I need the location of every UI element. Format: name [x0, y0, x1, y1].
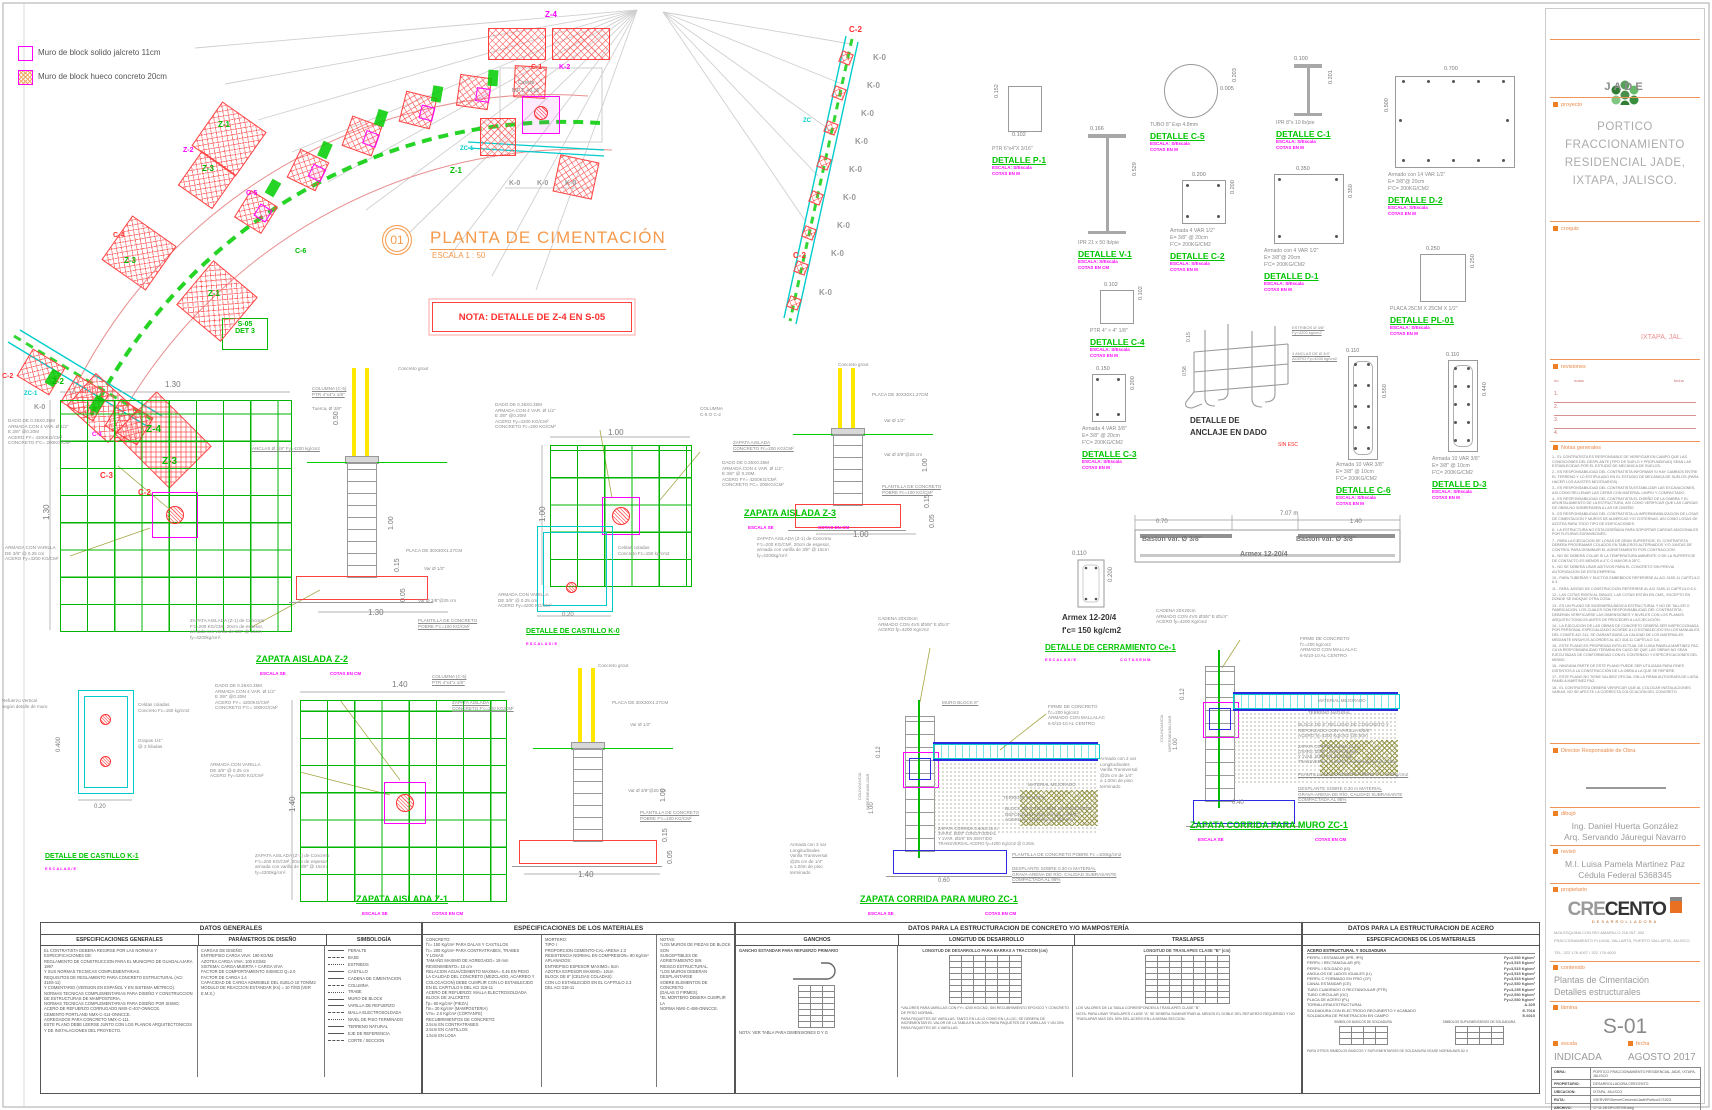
info-label: UBICACION: — [1552, 1088, 1591, 1095]
rebar-dot — [1217, 184, 1220, 187]
z2-section-dado-ladder — [347, 462, 377, 578]
plan-label-c-6: C-6 — [295, 248, 306, 255]
callout: Grapas 1/4"@ 2 hiladas — [138, 738, 162, 749]
plan-label-z-3: Z-3 — [202, 164, 214, 173]
callout: 0.529 — [1132, 162, 1139, 176]
rebar-dot — [1467, 439, 1470, 442]
detail-title-C-2: DETALLE C-2 — [1170, 251, 1225, 261]
callout: 0.200 — [1130, 376, 1137, 390]
table-line: MODULO DE REACCION ESTANDAR (Ks) = 10 T/… — [201, 985, 321, 996]
rebar-dot — [1402, 159, 1405, 162]
jade-logo-icon — [1546, 45, 1704, 105]
detail-card-C-6: Armada 10 VAR 3/8"E= 3/8" @ 10cmF'C= 200… — [1336, 462, 1391, 508]
grid-cell — [985, 998, 997, 1004]
zapata-tile — [101, 215, 176, 290]
callout: 1.00 — [660, 788, 668, 802]
rebar-dot — [1367, 405, 1370, 408]
croquis-place: IXTAPA, JAL. — [1641, 334, 1683, 342]
plan-label-k-0: K-0 — [34, 404, 45, 411]
callout: DADO DE 0.35X0.35MARMADA CON 4 VAR. Ø 1/… — [8, 418, 71, 446]
data-grid — [1339, 1026, 1388, 1045]
grid-cell — [1157, 998, 1169, 1004]
plan-label-c-3: C-3 — [92, 432, 102, 438]
callout: 0.550 — [1382, 384, 1389, 398]
dibujo-name-1: Ing. Daniel Huerta González — [1546, 821, 1704, 831]
callout: COLINDANCIA — [858, 773, 863, 800]
z1-section-dado-ladder — [573, 748, 603, 842]
plan-label-c-2: C-2 — [793, 251, 806, 260]
general-note: 8.- NO SE DEBERÁ COLAR SI LA TEMPERATURA… — [1552, 554, 1700, 563]
detail-caption: PTR 4" × 4" 1/8" — [1090, 328, 1145, 335]
detail-title-PL-01: DETALLE PL-01 — [1390, 315, 1458, 325]
symbol-glyph — [328, 1005, 344, 1006]
info-row: PROPIETARIO:DESARROLLADORA CRECENTO — [1552, 1080, 1700, 1088]
detail-title-C-5: DETALLE C-5 — [1150, 131, 1205, 141]
detail-cotas: COTAS EN M — [992, 171, 1046, 177]
callout: ZAPATA CORRIDA 0.40x0.15 m(2VARS. Ø3/8" … — [1298, 744, 1397, 764]
symbol-label: CORTE / SECCION — [348, 1038, 384, 1043]
glyph-section-D-2 — [1395, 76, 1515, 168]
propietario-label: propietario — [1553, 887, 1587, 893]
callout: DADO DE 0.35X0.35MARMADA CON 4 VAR. Ø 1/… — [215, 683, 278, 711]
zc1-right-castillo-inner — [1209, 708, 1231, 730]
rebar-dot — [1096, 378, 1099, 381]
detail-card-V-1: IPR 21 x 50 lb/pieDETALLE V-1ESCALA: S/E… — [1078, 240, 1132, 272]
symbol-label: NIVEL DE PISO TERMINADO — [348, 1017, 403, 1022]
callout: PLANTILLA DE CONCRETOPOBRE Fc=100 KG/CM² — [882, 484, 941, 495]
detail-card-D-1: Armado con 4 VAR 1/2"E= 3/8"@ 20cmF'C= 2… — [1264, 248, 1319, 294]
plan-label-c-4: C-4 — [114, 437, 125, 444]
callout: ZAPATA CORRIDA PARA MURO ZC-1 — [860, 894, 1018, 905]
callout: ESCALA SE — [1198, 837, 1224, 842]
plan-label-k-0: K-0 — [837, 221, 850, 230]
revision-row: 2. — [1554, 404, 1696, 416]
glyph-section-C-3 — [1092, 374, 1126, 422]
symbol-glyph — [328, 964, 344, 965]
general-note: 10.- PARA TUBERÍAS Y DUCTOS EMBEBIDOS RE… — [1552, 576, 1700, 585]
rebar-dot — [1367, 426, 1370, 429]
callout: SIN ESC — [1278, 442, 1298, 448]
lamina-label: lámina — [1553, 1005, 1577, 1011]
detail-caption: E= 3/8" @ 10cm — [1336, 469, 1391, 476]
callout: Celdas coladasConcreto Fc=150 kg/cm2 — [138, 702, 189, 713]
plan-label-c-1: C-1 — [531, 64, 542, 71]
especificaciones-generales-text: EL CONTRATISTA DEBERA REGIRSE POR LAS NO… — [41, 946, 198, 1077]
callout: 0.440 — [1482, 382, 1489, 396]
symbology-item: PERALTE — [328, 948, 418, 953]
grid-cell — [1339, 1039, 1351, 1045]
wall-segment — [374, 109, 388, 127]
revisiones-label: revisiones — [1553, 364, 1586, 370]
zapata-tile — [823, 120, 839, 136]
callout: ARMADA CON VARILLADE 3/8" @ 0.25 cmACERO… — [498, 592, 551, 609]
table-datos-generales: DATOS GENERALES ESPECIFICACIONES GENERAL… — [40, 922, 422, 1094]
detail-cotas: COTAS EN M — [1388, 211, 1445, 217]
plan-label-k-0: K-0 — [509, 180, 520, 187]
callout: 0.152 — [994, 84, 1001, 98]
detail-caption: Armada 10 VAR 3/8" — [1336, 462, 1391, 469]
callout: 1.40 — [1350, 519, 1362, 526]
rebar-dot — [1367, 447, 1370, 450]
rebar-dot — [1399, 119, 1402, 122]
ganchos-note: NOTA: VER TABLA PARA DIMENSIONES D Y G — [739, 1030, 894, 1035]
rebar-dot — [1506, 119, 1509, 122]
general-note: 17.- ESTE PLANO NO TIENE VALIDEZ OFICIAL… — [1552, 675, 1700, 684]
rebar-dot — [1454, 421, 1457, 424]
callout: PLANTILLA DE CONCRETO POBRE F'c =100kg/c… — [1298, 772, 1408, 778]
detail-cotas: COTAS EN M — [1170, 267, 1225, 273]
glyph-section-PL-01 — [1420, 254, 1466, 302]
glyph-ibeam-C-1 — [1294, 64, 1322, 116]
symbology-item: TERRENO NATURAL — [328, 1024, 418, 1029]
traslapes-caption: LONGITUD DE TRASLAPES CLASE "B" (cm) — [1076, 948, 1298, 953]
revision-row: 1. — [1554, 391, 1696, 403]
callout: DESPLANTE SOBRE 0.30 m MATERIALGRAVA-ARE… — [1012, 866, 1117, 883]
zc1-right-firme — [1233, 694, 1400, 709]
plan-label-k-0: K-0 — [867, 81, 880, 90]
callout: ESTRIBOS Ø 3/8"Fy=4200 kg/cm2 — [1292, 326, 1325, 336]
callout: PLACA DE 30X30X1.27CM — [406, 548, 462, 554]
callout: FIRME DE CONCRETOf'c=200 kg/cm2ARMADO CO… — [1300, 636, 1357, 658]
callout: ESCALA SE — [748, 525, 774, 530]
callout: E S C A L A S / E — [526, 642, 557, 647]
callout: f'c= 150 kg/cm2 — [1062, 626, 1121, 636]
plan-label-zc-1: ZC-1 — [24, 391, 37, 397]
callout: 0.200 — [1230, 180, 1237, 194]
callout: 0.12 — [1180, 688, 1187, 700]
glyph-section-C-4 — [1100, 290, 1134, 324]
detail-caption: F'C= 200KG/CM2 — [1388, 186, 1445, 193]
callout: 0.203 — [1232, 68, 1239, 82]
callout: E S C A L A S / E — [1045, 658, 1076, 663]
plan-label-c-2: C-2 — [849, 25, 862, 34]
grid-cell — [823, 1022, 835, 1028]
callout: PLANTILLA DE CONCRETO POBRE Fc =100kg/cm… — [1012, 852, 1121, 858]
general-notes: 1.- EL CONTRATISTA ES RESPONSABLE DE VER… — [1552, 455, 1700, 696]
table-line: REQUISITOS DE REGLAMENTO PARA CONCRETO E… — [44, 975, 194, 986]
portal-dado-circle — [534, 106, 548, 120]
data-grid — [1145, 955, 1230, 1004]
callout: 0.12 — [876, 746, 883, 758]
table-line: REGLAMENTO DE CONSTRUCCION PARA EL MUNIC… — [44, 959, 194, 970]
info-label: OBRA: — [1552, 1068, 1591, 1079]
rebar-dot — [1477, 80, 1480, 83]
crecento-logo-part1: CRE — [1568, 899, 1605, 920]
zapata-tile — [831, 85, 847, 101]
detail-caption: E= 3/8" @ 10cm — [1432, 463, 1487, 470]
signature-line — [1586, 787, 1666, 789]
fecha-label: fecha — [1628, 1041, 1649, 1047]
callout: 1.00 — [869, 802, 876, 814]
detail-caption: F'C= 200KG/CM2 — [1082, 440, 1137, 447]
callout: ZAPATA AISLADA Z-1 — [356, 894, 448, 905]
table-line: SUSCEPTIBLES DE AGRIETAMIENTO SIN — [660, 953, 731, 964]
acero-item: SOLDADURA DE PENETRACION EN CAMPO — [1307, 1013, 1389, 1018]
detail-cotas: COTAS EN M — [1276, 145, 1331, 151]
callout: 1.00 — [538, 506, 548, 522]
general-note: 14.- LA EJECUCION DE LAS OBRAS DE CONCRE… — [1552, 624, 1700, 643]
simbologia-list: PERALTEBASEESTRIBOSCASTILLOCADENA DE CIM… — [325, 946, 421, 1077]
zc1-left-plantilla — [886, 876, 1012, 877]
zapata-tile — [480, 118, 516, 156]
table-line: 1.5cm EN LOSA — [426, 1033, 538, 1038]
cage — [1453, 365, 1473, 447]
grid-cell — [1467, 1039, 1479, 1045]
callout: Concreto grout — [838, 362, 868, 368]
detail-caption: PTR 6"x4"X 3/16" — [992, 146, 1046, 153]
info-value: PORTICO FRACCIONAMIENTO RESIDENCIAL JADE… — [1591, 1068, 1700, 1079]
symbol-glyph — [328, 1033, 344, 1034]
general-note: 9.- NO SE DEBERÁ USAR ADITIVOS PARA EL C… — [1552, 565, 1700, 574]
callout: 0.350 — [1348, 184, 1355, 198]
detail-title-D-2: DETALLE D-2 — [1388, 195, 1445, 205]
callout: 0.60 — [938, 878, 950, 885]
callout: COTAS EN CM — [432, 911, 463, 916]
callout: 0.05 — [400, 588, 408, 602]
wall-segment — [487, 70, 498, 87]
table-mamposteria: DATOS PARA LA ESTRUCTURACION DE CONCRETO… — [735, 922, 1302, 1094]
callout: 4 ANCLAS DE Ø 3/4"ACERO Fy=4200 kg/cm2 — [1292, 352, 1337, 362]
castillo-marker — [475, 87, 491, 103]
castillo-k0-inner — [543, 532, 607, 606]
info-row: RUTA:\\SERVER\Server\Crecento\Jade\Pórti… — [1552, 1096, 1700, 1104]
table-line: Y DE INSTALACIONES DEL PROYECTO. — [44, 1028, 194, 1033]
z3-section-dado-ladder — [833, 434, 863, 506]
callout: DETALLE DE CASTILLO K-0 — [526, 628, 620, 636]
detail-caption: Armada 4 VAR 1/2" — [1170, 228, 1225, 235]
longitud-caption: LONGITUD DE DESARROLLO PARA BARRAS A TRA… — [901, 948, 1069, 953]
general-note: 5.- ES RESPONSABILIDAD DEL CONTRATISTA L… — [1552, 512, 1700, 526]
callout: 1.40 — [288, 796, 298, 812]
general-note: 11.- PARA JUNTAS DE CONSTRUCCION REFERIR… — [1552, 587, 1700, 592]
callout: 1.00 — [922, 458, 930, 472]
address-line-2: FRACCIONAMIENTO FLUVIAL VALLARTA, PUERTO… — [1554, 939, 1694, 944]
symbol-glyph — [328, 957, 344, 958]
callout: Armex 12-20/4 — [1062, 613, 1116, 623]
plan-label-z-3: Z-3 — [124, 256, 136, 265]
plan-label-k-0: K-0 — [831, 249, 844, 258]
col-traslapes: TRASLAPES — [1075, 935, 1301, 945]
plan-label-k-0: K-0 — [861, 109, 874, 118]
detail-card-C-4: PTR 4" × 4" 1/8"DETALLE C-4ESCALA: S/Esc… — [1090, 328, 1145, 360]
rebar-dot — [1502, 80, 1505, 83]
symbology-item: EJE DE REFERENCIA — [328, 1031, 418, 1036]
detail-caption: PLACA 25CM X 25CM X 1/2" — [1390, 306, 1458, 313]
callout: ARMADA CON VARILLADE 3/8" @ 0.25 cmACERO… — [210, 762, 263, 779]
callout: COTAS EN CM — [330, 671, 361, 676]
callout: 0.40 — [1232, 800, 1244, 807]
detail-card-P-1: PTR 6"x4"X 3/16"DETALLE P-1ESCALA: S/Esc… — [992, 146, 1046, 178]
zc1-left-firme — [933, 744, 1100, 759]
contenido-line-2: Detalles estructurales — [1554, 987, 1641, 998]
detail-caption: Armada 4 VAR 3/8" — [1082, 426, 1137, 433]
plan-label-n.p.t. +0.15: N.P.T. +0.15 — [512, 88, 539, 94]
callout: 0.102 — [1138, 286, 1145, 300]
rebar-dot — [1454, 439, 1457, 442]
plan-label-z-4: Z-4 — [146, 424, 161, 435]
callout: TERRENO NATURAL — [1308, 710, 1351, 715]
info-row: OBRA:PORTICO FRACCIONAMIENTO RESIDENCIAL… — [1552, 1068, 1700, 1080]
symbol-label: VARILLA DE REFUERZO — [348, 1003, 395, 1008]
callout: E S C A L A S / E — [45, 867, 76, 872]
acero-rows: PERFIL I ESTANDAR (IPR, IPS)Fy=2,530 Kg/… — [1307, 955, 1535, 1018]
grid-cell — [1375, 1039, 1387, 1045]
castillo-marker — [419, 105, 436, 122]
table-note: PARA PAQUETES DE VARILLAS, TANTO EN LA L… — [901, 1017, 1069, 1031]
web — [1106, 134, 1109, 234]
zapata-tile — [816, 155, 832, 171]
rebar-dot — [1477, 159, 1480, 162]
project-name-1: PORTICO — [1546, 121, 1704, 133]
callout: 0.150 — [1096, 366, 1110, 373]
rebar-dot — [1452, 80, 1455, 83]
wall-segment — [265, 179, 282, 198]
weld-table-1-title: SIMBOLOS BASICOS DE SOLDADURA — [1307, 1020, 1419, 1024]
table-line: ESTE PLANO DEBE LEERSE JUNTO CON LOS PLA… — [44, 1022, 194, 1027]
z1-section-grade-line — [533, 748, 673, 749]
col-ganchos: GANCHOS — [736, 935, 899, 945]
callout: 1.00 — [1173, 738, 1180, 750]
detail-title-C-6: DETALLE C-6 — [1336, 485, 1391, 495]
callout: PLACA DE 30X30X1.27CM — [612, 700, 668, 706]
plan-label-caseta: Caseta — [518, 80, 534, 86]
callout: ESCALA SE — [362, 911, 388, 916]
detail-title-D-3: DETALLE D-3 — [1432, 479, 1487, 489]
callout: 0.50 — [333, 411, 341, 425]
symbology-item: CORTE / SECCION — [328, 1038, 418, 1043]
rebar-dot — [1427, 80, 1430, 83]
info-value: 17.11.28.OP.LISTOS.dwg — [1591, 1104, 1700, 1110]
z2-section-grade-line — [307, 462, 447, 463]
symbology-item: MURO DE BLOCK — [328, 996, 418, 1001]
project-name-4: IXTAPA, JALISCO. — [1546, 175, 1704, 187]
symbol-label: TRABE — [348, 989, 362, 994]
callout: Armex 12-20/4 — [1240, 551, 1287, 559]
contenido-label: contenido — [1553, 965, 1585, 971]
table-line: *LOS MUROS DE PIEZAS DE BLOCK SON — [660, 942, 731, 953]
zapata-tile — [176, 260, 258, 342]
detail-caption: Armado con 4 VAR 1/2" — [1264, 248, 1319, 255]
callout: Refuerzo Verticalsegún detalle de muro — [2, 698, 47, 709]
symbology-item: CASTILLO — [328, 969, 418, 974]
callout: 0.166 — [1090, 126, 1104, 133]
callout: Concreto grout — [398, 366, 428, 372]
callout: 0.201 — [1328, 70, 1335, 84]
grid-cell — [997, 998, 1009, 1004]
web — [1307, 64, 1310, 116]
detail-title-C-4: DETALLE C-4 — [1090, 337, 1145, 347]
callout: Armado con 2 varLongitudinalesVarilla Tr… — [1100, 756, 1137, 789]
callout: 0.250 — [1426, 246, 1440, 253]
symbol-label: BASE — [348, 955, 359, 960]
plan-label-z-1: Z-1 — [218, 120, 230, 129]
detail-title-C-3: DETALLE C-3 — [1082, 449, 1137, 459]
plan-label-z-1: Z-1 — [208, 289, 220, 298]
detail-caption: IPR 21 x 50 lb/pie — [1078, 240, 1132, 247]
proyecto-label: proyecto — [1553, 102, 1582, 108]
callout: COLUMNA (C-5)PTR 4"x4"x 1/8" — [312, 386, 346, 397]
rebar-dot — [1217, 215, 1220, 218]
table-line: *LOS MUROS DEBERAN DESPLANTARSE — [660, 969, 731, 980]
z2-section-column — [352, 368, 356, 462]
table-line: Y COMENTARIO (VERSION EN ESPAÑOL Y EN SI… — [44, 985, 194, 990]
general-note: 4.- ES RESPONSABILIDAD DEL CONTRATISTA E… — [1552, 497, 1700, 511]
callout: COLUMNA (C-5)PTR 4"x4"x 1/8" — [432, 674, 466, 685]
rebar-dot — [1354, 426, 1357, 429]
symbol-label: EJE DE REFERENCIA — [348, 1031, 390, 1036]
title-block: JADE proyecto PORTICO FRACCIONAMIENTO RE… — [1545, 8, 1705, 1104]
symbol-glyph — [328, 999, 344, 1000]
rev-col-no: no. — [1554, 379, 1560, 384]
grid-cell — [1351, 1039, 1363, 1045]
plan-label-z-3: Z-3 — [162, 456, 177, 467]
z3-section-grade-line — [793, 434, 933, 435]
detail-caption: IPR 8"x 10 lb/pie — [1276, 120, 1331, 127]
traslapes-content: LONGITUD DE TRASLAPES CLASE "B" (cm) LOS… — [1073, 946, 1301, 1077]
zc1-left-firme-bot — [933, 759, 1098, 761]
detail-title-D-1: DETALLE D-1 — [1264, 271, 1319, 281]
rebar-dot — [1402, 80, 1405, 83]
callout: 7.07 m — [1280, 511, 1298, 518]
info-label: RUTA: — [1552, 1096, 1591, 1103]
materiales-mortero: MORTERO: TIPO I PROPORCION CEMENTO-CAL-A… — [542, 935, 657, 1087]
callout: ESCALA SE — [868, 911, 894, 916]
rebar-dot — [1354, 363, 1357, 366]
detail-cotas: COTAS EN M — [1082, 465, 1137, 471]
zapata-tile — [838, 50, 854, 66]
symbol-glyph — [328, 1019, 344, 1020]
callout: 0.15 — [662, 828, 670, 842]
reviso-label: revisó — [1553, 849, 1576, 855]
castillo-k1-inner — [84, 696, 128, 788]
info-label: PROPIETARIO: — [1552, 1080, 1591, 1087]
symbol-glyph — [328, 971, 344, 972]
callout: 0.200 — [1192, 172, 1206, 179]
symbology-item: COLUMNA — [328, 983, 418, 988]
grid-cell — [961, 998, 973, 1004]
rebar-dot — [1467, 385, 1470, 388]
callout: TERRENO NATURAL — [1003, 795, 1046, 800]
callout: COTAS EN CM — [985, 911, 1016, 916]
table-note: NOTA: PARA USAR TRASLAPES CLASE "A" SE D… — [1076, 1012, 1298, 1021]
callout: ANCLAS Ø 3/8" Fy=4200 kg/cm2 — [252, 446, 320, 452]
k1-rebar — [100, 714, 111, 725]
crecento-logo: CRECENTO DESARROLLADORA — [1546, 897, 1704, 924]
detail-cotas: COTAS EN M — [1390, 331, 1458, 337]
callout: CADENA 20X20cmARMADO CON 4VS Ø3/8" E Ø1/… — [878, 616, 950, 633]
rebar-dot — [1186, 184, 1189, 187]
info-value: IXTAPA, JALISCO — [1591, 1088, 1700, 1095]
callout: ZAPATA AISLADACONCRETO F'c=200 KG/CM² — [452, 700, 514, 711]
callout: ZAPATA CORRIDA 0.60x0.15 m3VARS. Ø3/8" L… — [938, 826, 1035, 846]
rebar-dot — [1502, 159, 1505, 162]
callout: 0.15 — [924, 494, 932, 508]
callout: 0.102 — [1012, 132, 1026, 139]
plan-label-k-0: K-0 — [843, 193, 856, 202]
detail-caption: F'C= 200KG/CM2 — [1336, 476, 1391, 483]
rebar-dot — [1335, 178, 1338, 181]
callout: 0.20 — [562, 612, 574, 619]
rebar-dot — [1354, 447, 1357, 450]
callout: COLUMNAC-5 O C-2 — [700, 406, 723, 417]
detail-card-PL-01: PLACA 25CM X 25CM X 1/2"DETALLE PL-01ESC… — [1390, 306, 1458, 338]
general-note: 15.- ESTE PLANO ES PROPIEDAD INTELECTUAL… — [1552, 644, 1700, 663]
rebar-dot — [1367, 363, 1370, 366]
symbology-item: NIVEL DE PISO TERMINADO — [328, 1017, 418, 1022]
plan-label-z-1: Z-1 — [450, 166, 462, 175]
callout: 0.15 — [1186, 332, 1192, 342]
callout: MATERIAL MEJORADO — [1318, 698, 1366, 703]
